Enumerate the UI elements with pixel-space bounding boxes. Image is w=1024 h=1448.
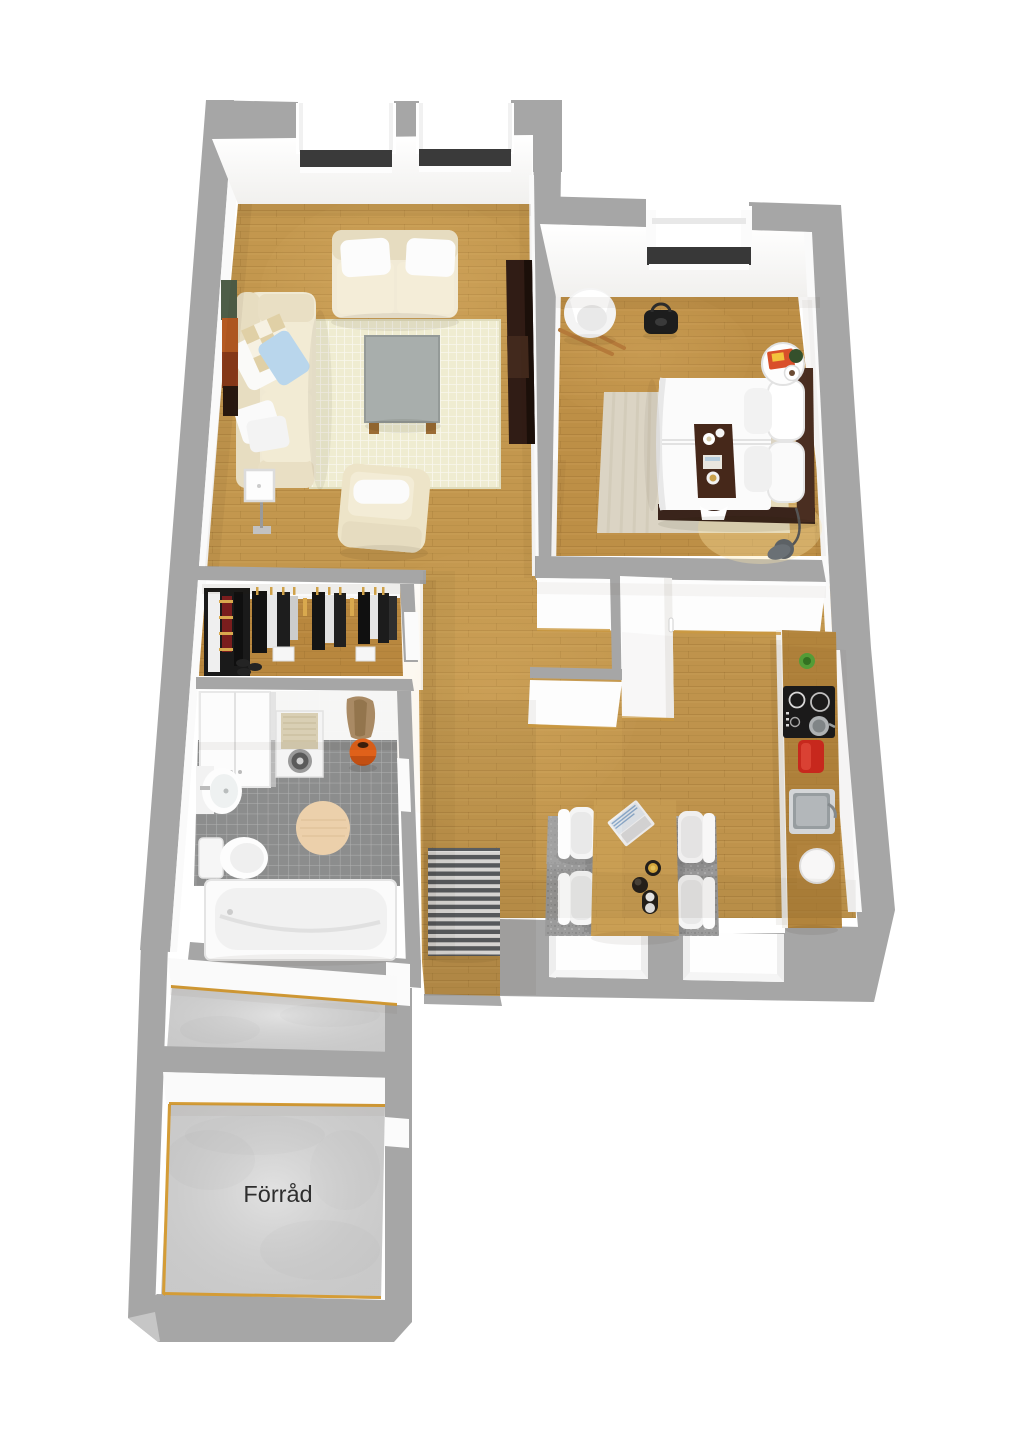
svg-text:Förråd: Förråd: [243, 1181, 312, 1207]
